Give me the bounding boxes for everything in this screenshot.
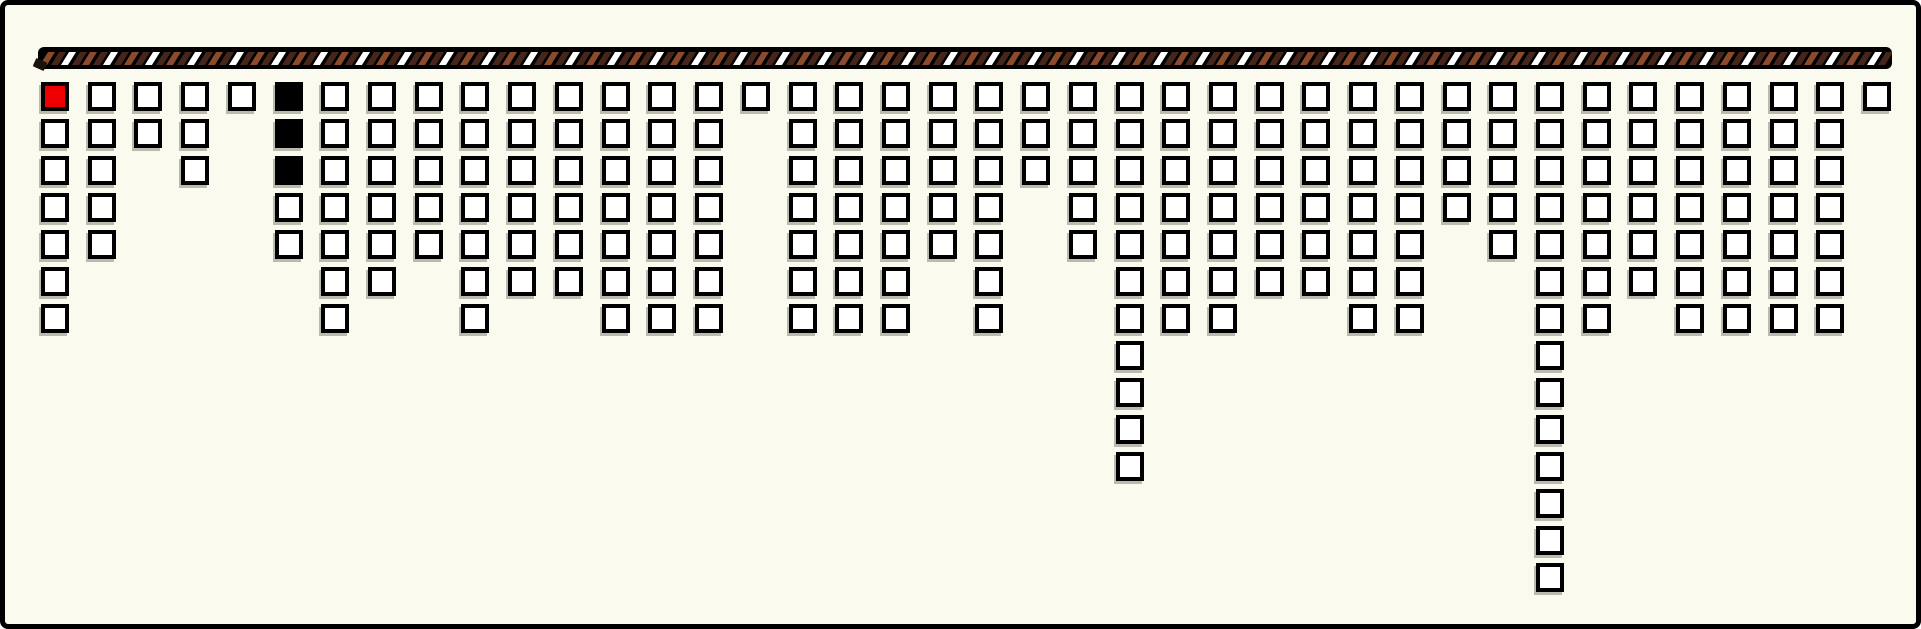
unit-square [835, 156, 863, 185]
unit-square [88, 193, 116, 222]
unit-square [929, 230, 957, 259]
unit-square [1629, 82, 1657, 111]
unit-square [1349, 156, 1377, 185]
unit-square [368, 119, 396, 148]
unit-square [1256, 119, 1284, 148]
unit-square [508, 156, 536, 185]
unit-square [882, 230, 910, 259]
unit-square [1162, 230, 1190, 259]
unit-square [461, 267, 489, 296]
unit-square [1489, 230, 1517, 259]
unit-square [929, 82, 957, 111]
unit-square [648, 304, 676, 333]
unit-square [1629, 230, 1657, 259]
unit-square [1209, 304, 1237, 333]
unit-square [88, 119, 116, 148]
unit-square [508, 82, 536, 111]
unit-square [1302, 156, 1330, 185]
unit-square [1770, 156, 1798, 185]
unit-square [461, 156, 489, 185]
unit-square [602, 230, 630, 259]
unit-column [602, 82, 630, 333]
unit-square [1536, 341, 1564, 370]
unit-square [415, 119, 443, 148]
unit-square [181, 82, 209, 111]
unit-square [181, 156, 209, 185]
unit-square [929, 156, 957, 185]
unit-square [1723, 193, 1751, 222]
unit-square [1349, 119, 1377, 148]
unit-square [1676, 156, 1704, 185]
unit-square [1302, 193, 1330, 222]
unit-square [835, 304, 863, 333]
unit-square [321, 193, 349, 222]
unit-square [1489, 193, 1517, 222]
unit-square [1022, 156, 1050, 185]
unit-square [1583, 267, 1611, 296]
unit-column [134, 82, 162, 148]
unit-square [1536, 119, 1564, 148]
unit-square [1583, 82, 1611, 111]
unit-square [1770, 119, 1798, 148]
unit-column [1676, 82, 1704, 333]
unit-square [835, 230, 863, 259]
unit-square [1770, 193, 1798, 222]
unit-column [181, 82, 209, 185]
unit-square [1116, 452, 1144, 481]
unit-square [789, 82, 817, 111]
unit-square [1116, 119, 1144, 148]
unit-column [415, 82, 443, 259]
unit-square [1022, 82, 1050, 111]
unit-square [415, 230, 443, 259]
unit-square [975, 82, 1003, 111]
unit-square [1723, 156, 1751, 185]
unit-column [929, 82, 957, 259]
unit-square [1770, 82, 1798, 111]
unit-column [1489, 82, 1517, 259]
unit-square [1302, 119, 1330, 148]
unit-square [1162, 193, 1190, 222]
unit-square [1583, 230, 1611, 259]
unit-column [1256, 82, 1284, 296]
unit-grid [5, 5, 1916, 624]
unit-square [648, 230, 676, 259]
unit-square [228, 82, 256, 111]
unit-square [1536, 304, 1564, 333]
unit-square [415, 156, 443, 185]
unit-square [1629, 119, 1657, 148]
unit-square [882, 193, 910, 222]
unit-square [368, 193, 396, 222]
unit-square [1349, 304, 1377, 333]
unit-square [368, 267, 396, 296]
unit-square [1723, 119, 1751, 148]
unit-square [1069, 156, 1097, 185]
unit-square [555, 193, 583, 222]
unit-column [368, 82, 396, 296]
unit-square [1396, 119, 1424, 148]
unit-square [1676, 82, 1704, 111]
unit-square [1302, 82, 1330, 111]
unit-square [602, 119, 630, 148]
unit-column [1116, 82, 1144, 481]
unit-square [368, 156, 396, 185]
unit-square [41, 119, 69, 148]
unit-column [1583, 82, 1611, 333]
unit-square [1770, 304, 1798, 333]
unit-square [508, 193, 536, 222]
unit-square [648, 156, 676, 185]
unit-square [1536, 452, 1564, 481]
unit-square [368, 82, 396, 111]
unit-square [1583, 156, 1611, 185]
unit-square [1209, 119, 1237, 148]
unit-square [41, 230, 69, 259]
unit-square [1629, 193, 1657, 222]
unit-square [461, 193, 489, 222]
unit-square [1162, 119, 1190, 148]
unit-square [882, 82, 910, 111]
unit-square [1770, 267, 1798, 296]
unit-square [1723, 230, 1751, 259]
unit-square [1069, 82, 1097, 111]
unit-square [41, 156, 69, 185]
unit-square [882, 156, 910, 185]
unit-square [648, 267, 676, 296]
unit-square [789, 267, 817, 296]
unit-square [275, 193, 303, 222]
unit-square [1209, 156, 1237, 185]
unit-column [789, 82, 817, 333]
unit-column [1443, 82, 1471, 222]
unit-square [461, 82, 489, 111]
unit-square [1256, 267, 1284, 296]
unit-square [1816, 304, 1844, 333]
unit-square [1256, 193, 1284, 222]
unit-square [1162, 82, 1190, 111]
unit-square [1536, 82, 1564, 111]
unit-column [275, 82, 303, 259]
unit-square [321, 267, 349, 296]
unit-square [742, 82, 770, 111]
unit-square [1116, 304, 1144, 333]
unit-square [1209, 267, 1237, 296]
unit-square [1536, 526, 1564, 555]
unit-square [1116, 156, 1144, 185]
unit-column [882, 82, 910, 333]
unit-square [508, 119, 536, 148]
unit-square [1676, 119, 1704, 148]
unit-square [1116, 82, 1144, 111]
unit-column [41, 82, 69, 333]
unit-square [1723, 304, 1751, 333]
unit-square [1116, 378, 1144, 407]
unit-square [1116, 267, 1144, 296]
unit-square [975, 193, 1003, 222]
unit-square [1256, 230, 1284, 259]
unit-square [975, 119, 1003, 148]
unit-column [1209, 82, 1237, 333]
unit-square [1256, 156, 1284, 185]
unit-square [1209, 193, 1237, 222]
unit-column [228, 82, 256, 111]
unit-square [321, 156, 349, 185]
unit-square [321, 304, 349, 333]
unit-square [134, 119, 162, 148]
unit-square [1489, 119, 1517, 148]
unit-column [461, 82, 489, 333]
unit-square [368, 230, 396, 259]
unit-square [1396, 304, 1424, 333]
unit-square [1816, 119, 1844, 148]
unit-square [695, 156, 723, 185]
unit-square [975, 267, 1003, 296]
unit-square [1349, 230, 1377, 259]
unit-square [555, 156, 583, 185]
unit-square [975, 304, 1003, 333]
unit-square [929, 119, 957, 148]
unit-square [181, 119, 209, 148]
unit-square [415, 82, 443, 111]
unit-square [555, 82, 583, 111]
unit-square [1256, 82, 1284, 111]
unit-square [1116, 230, 1144, 259]
unit-square [835, 267, 863, 296]
unit-square [648, 119, 676, 148]
unit-column [835, 82, 863, 333]
unit-square [1629, 156, 1657, 185]
unit-square [789, 156, 817, 185]
unit-square [134, 82, 162, 111]
unit-square [1536, 489, 1564, 518]
unit-square [1816, 193, 1844, 222]
unit-square [695, 82, 723, 111]
unit-square [789, 230, 817, 259]
unit-square [1443, 82, 1471, 111]
black-unit-square [275, 156, 303, 185]
unit-column [1816, 82, 1844, 333]
unit-square [508, 230, 536, 259]
unit-square [882, 119, 910, 148]
unit-column [1723, 82, 1751, 333]
unit-square [695, 119, 723, 148]
unit-square [1162, 304, 1190, 333]
unit-column [555, 82, 583, 296]
unit-square [602, 304, 630, 333]
unit-square [1396, 82, 1424, 111]
unit-square [1676, 267, 1704, 296]
unit-square [555, 267, 583, 296]
unit-square [1723, 267, 1751, 296]
unit-square [1816, 267, 1844, 296]
unit-column [1349, 82, 1377, 333]
poster-frame [0, 0, 1921, 629]
unit-square [1069, 230, 1097, 259]
unit-square [1489, 82, 1517, 111]
unit-square [602, 82, 630, 111]
unit-square [695, 304, 723, 333]
unit-square [321, 230, 349, 259]
unit-square [1116, 415, 1144, 444]
unit-square [1349, 267, 1377, 296]
unit-square [1583, 193, 1611, 222]
unit-square [1116, 193, 1144, 222]
unit-column [1396, 82, 1424, 333]
unit-square [88, 82, 116, 111]
unit-square [1443, 156, 1471, 185]
unit-square [1302, 230, 1330, 259]
unit-square [695, 193, 723, 222]
unit-square [835, 119, 863, 148]
red-unit-square [41, 82, 69, 111]
unit-square [789, 304, 817, 333]
unit-column [1863, 82, 1891, 111]
unit-square [835, 193, 863, 222]
unit-square [1302, 267, 1330, 296]
unit-square [555, 230, 583, 259]
unit-square [695, 230, 723, 259]
unit-square [789, 193, 817, 222]
unit-column [1302, 82, 1330, 296]
unit-square [1536, 563, 1564, 592]
unit-column [321, 82, 349, 333]
unit-column [648, 82, 676, 333]
unit-square [88, 156, 116, 185]
unit-square [602, 156, 630, 185]
unit-square [1676, 193, 1704, 222]
unit-square [41, 267, 69, 296]
unit-square [1116, 341, 1144, 370]
unit-column [88, 82, 116, 259]
unit-square [1209, 230, 1237, 259]
unit-square [1396, 156, 1424, 185]
unit-square [1676, 230, 1704, 259]
unit-square [1069, 119, 1097, 148]
unit-square [1396, 230, 1424, 259]
unit-square [555, 119, 583, 148]
unit-square [1536, 156, 1564, 185]
unit-column [1770, 82, 1798, 333]
unit-square [508, 267, 536, 296]
unit-square [1069, 193, 1097, 222]
unit-square [1443, 119, 1471, 148]
unit-square [975, 230, 1003, 259]
unit-square [1863, 82, 1891, 111]
black-unit-square [275, 119, 303, 148]
unit-square [88, 230, 116, 259]
unit-square [602, 267, 630, 296]
unit-square [41, 304, 69, 333]
unit-column [1536, 82, 1564, 592]
unit-square [1536, 415, 1564, 444]
unit-square [461, 119, 489, 148]
unit-square [1676, 304, 1704, 333]
unit-square [1536, 378, 1564, 407]
unit-square [695, 267, 723, 296]
unit-column [1629, 82, 1657, 296]
unit-square [1816, 156, 1844, 185]
unit-column [1069, 82, 1097, 259]
unit-square [1162, 156, 1190, 185]
unit-square [1536, 267, 1564, 296]
unit-square [1443, 193, 1471, 222]
unit-square [602, 193, 630, 222]
unit-square [789, 119, 817, 148]
unit-square [1723, 82, 1751, 111]
unit-square [1583, 304, 1611, 333]
unit-square [1489, 156, 1517, 185]
unit-square [1209, 82, 1237, 111]
unit-column [1162, 82, 1190, 333]
unit-square [415, 193, 443, 222]
unit-square [1349, 82, 1377, 111]
unit-square [882, 304, 910, 333]
unit-square [975, 156, 1003, 185]
unit-square [41, 193, 69, 222]
unit-square [1349, 193, 1377, 222]
unit-square [1536, 193, 1564, 222]
unit-square [321, 119, 349, 148]
unit-square [929, 193, 957, 222]
unit-square [321, 82, 349, 111]
unit-square [648, 82, 676, 111]
unit-square [1816, 230, 1844, 259]
unit-column [742, 82, 770, 111]
unit-square [882, 267, 910, 296]
unit-column [508, 82, 536, 296]
unit-square [1396, 193, 1424, 222]
unit-square [1583, 119, 1611, 148]
unit-square [461, 230, 489, 259]
unit-column [695, 82, 723, 333]
black-unit-square [275, 82, 303, 111]
unit-square [1396, 267, 1424, 296]
unit-column [1022, 82, 1050, 185]
unit-column [975, 82, 1003, 333]
unit-square [1770, 230, 1798, 259]
unit-square [1536, 230, 1564, 259]
unit-square [1816, 82, 1844, 111]
unit-square [1162, 267, 1190, 296]
unit-square [835, 82, 863, 111]
unit-square [648, 193, 676, 222]
unit-square [461, 304, 489, 333]
unit-square [275, 230, 303, 259]
unit-square [1629, 267, 1657, 296]
unit-square [1022, 119, 1050, 148]
